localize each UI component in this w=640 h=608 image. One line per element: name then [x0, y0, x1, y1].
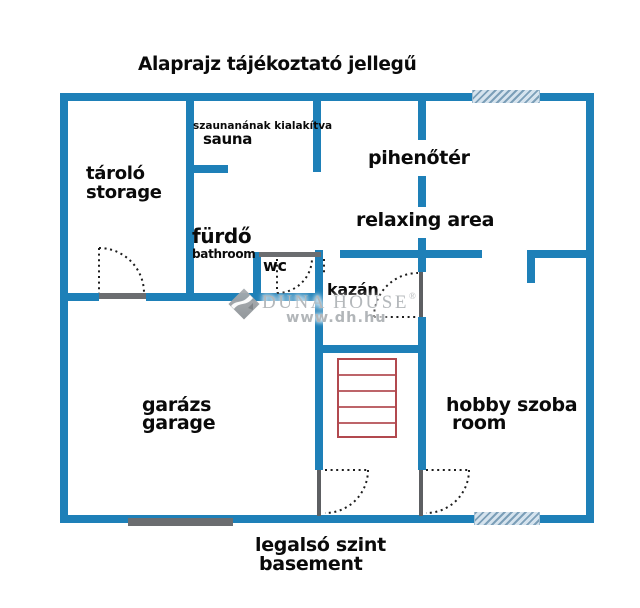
wall-sauna-bottom: [186, 165, 228, 173]
floor-plan: Alaprajz tájékoztató jellegű: [0, 0, 640, 608]
wall-boiler-top: [340, 250, 482, 258]
label-relaxing-en: relaxing area: [356, 211, 494, 230]
wall-central-spine: [315, 250, 323, 470]
window-bottom: [474, 512, 540, 525]
wall-relax-left-a: [418, 101, 426, 140]
garage-door: [128, 518, 233, 526]
page-title: Alaprajz tájékoztató jellegű: [138, 56, 417, 75]
label-relaxing-hu: pihenőtér: [368, 149, 470, 168]
registered-mark: ®: [409, 291, 416, 301]
watermark-url: www.dh.hu: [286, 310, 387, 326]
label-garage-en: garage: [142, 414, 215, 433]
door-arc-storage: [99, 248, 144, 293]
stair-tread: [339, 422, 395, 424]
door-jamb-boiler: [419, 272, 423, 317]
label-wc: wc: [263, 258, 287, 274]
door-arc-garage: [325, 470, 368, 513]
label-bathroom-hu: fürdő: [192, 226, 251, 246]
label-storage-en: storage: [86, 184, 162, 202]
door-jamb-hobby: [419, 470, 423, 516]
stair-tread: [339, 390, 395, 392]
door-jamb-garage: [317, 470, 321, 516]
door-threshold-storage: [99, 293, 146, 299]
label-storage-hu: tároló: [86, 165, 145, 183]
label-sauna-hu: sauna: [203, 132, 252, 147]
label-bathroom-en: bathroom: [192, 248, 255, 260]
wall-relax-left-b: [418, 176, 426, 207]
door-arc-hobby: [426, 470, 469, 513]
dunahouse-logo-icon: [226, 286, 262, 322]
label-hobby-en: room: [452, 414, 506, 433]
wall-stair-top: [315, 345, 426, 353]
stair-tread: [339, 406, 395, 408]
wall-outer-right: [586, 93, 594, 523]
wall-hobby-left: [418, 317, 426, 470]
window-top: [472, 90, 540, 103]
stair-tread: [339, 374, 395, 376]
wall-outer-left: [60, 93, 68, 523]
wall-garage-top-left: [60, 293, 99, 301]
wall-relax-bottom-right: [527, 250, 594, 258]
wall-sauna-right: [313, 101, 321, 172]
wall-hobby-stub: [527, 258, 535, 283]
stairs: [337, 358, 397, 438]
label-floor-en: basement: [259, 555, 363, 574]
